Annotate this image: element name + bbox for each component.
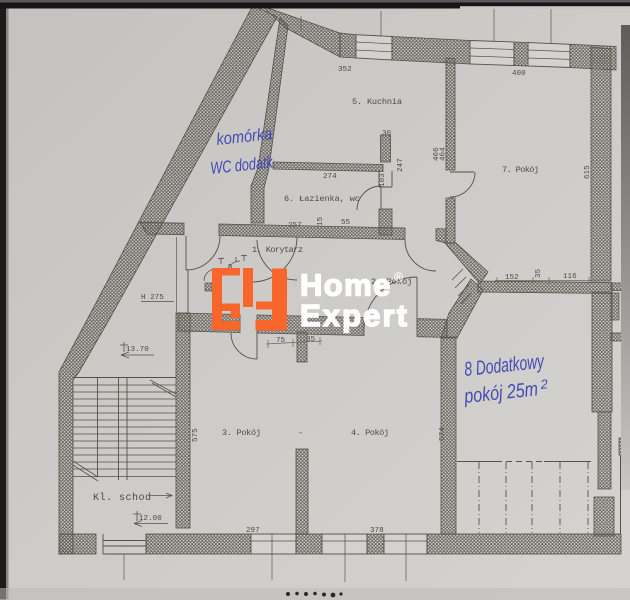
svg-text:274: 274	[323, 173, 337, 181]
svg-text:378: 378	[370, 527, 384, 535]
svg-text:-: -	[298, 428, 303, 438]
svg-text:257: 257	[288, 222, 302, 230]
svg-text:574: 574	[439, 427, 447, 441]
svg-text:75: 75	[276, 337, 286, 345]
svg-text:®: ®	[394, 271, 404, 285]
svg-text:103: 103	[379, 173, 387, 187]
svg-text:615: 615	[584, 165, 592, 179]
svg-text:247: 247	[397, 158, 405, 172]
svg-text:15: 15	[317, 216, 325, 226]
svg-text:4. Pokój: 4. Pokój	[351, 428, 389, 438]
svg-text:575: 575	[192, 428, 200, 442]
svg-text:13.70: 13.70	[126, 346, 149, 354]
svg-text:55: 55	[341, 219, 351, 227]
svg-text:12.00: 12.00	[139, 515, 162, 523]
svg-text:Expert: Expert	[300, 298, 409, 333]
svg-text:H 275: H 275	[141, 294, 164, 302]
svg-text:35: 35	[306, 336, 316, 344]
svg-text:6. Łazienka, wc: 6. Łazienka, wc	[284, 194, 360, 204]
svg-text:352: 352	[338, 66, 352, 74]
svg-text:3. Pokój: 3. Pokój	[222, 428, 261, 438]
svg-text:400: 400	[512, 70, 526, 78]
svg-text:30: 30	[382, 130, 392, 138]
svg-text:297: 297	[246, 527, 260, 535]
svg-text:5. Kuchnia: 5. Kuchnia	[352, 97, 402, 107]
svg-text:35: 35	[535, 268, 543, 278]
svg-text:464: 464	[440, 147, 448, 161]
svg-text:7. Pokój: 7. Pokój	[502, 165, 539, 175]
svg-text:152: 152	[505, 274, 519, 282]
svg-text:1. Korytarz: 1. Korytarz	[252, 245, 303, 255]
svg-text:Kl. schod: Kl. schod	[93, 492, 152, 504]
svg-text:116: 116	[563, 273, 577, 281]
